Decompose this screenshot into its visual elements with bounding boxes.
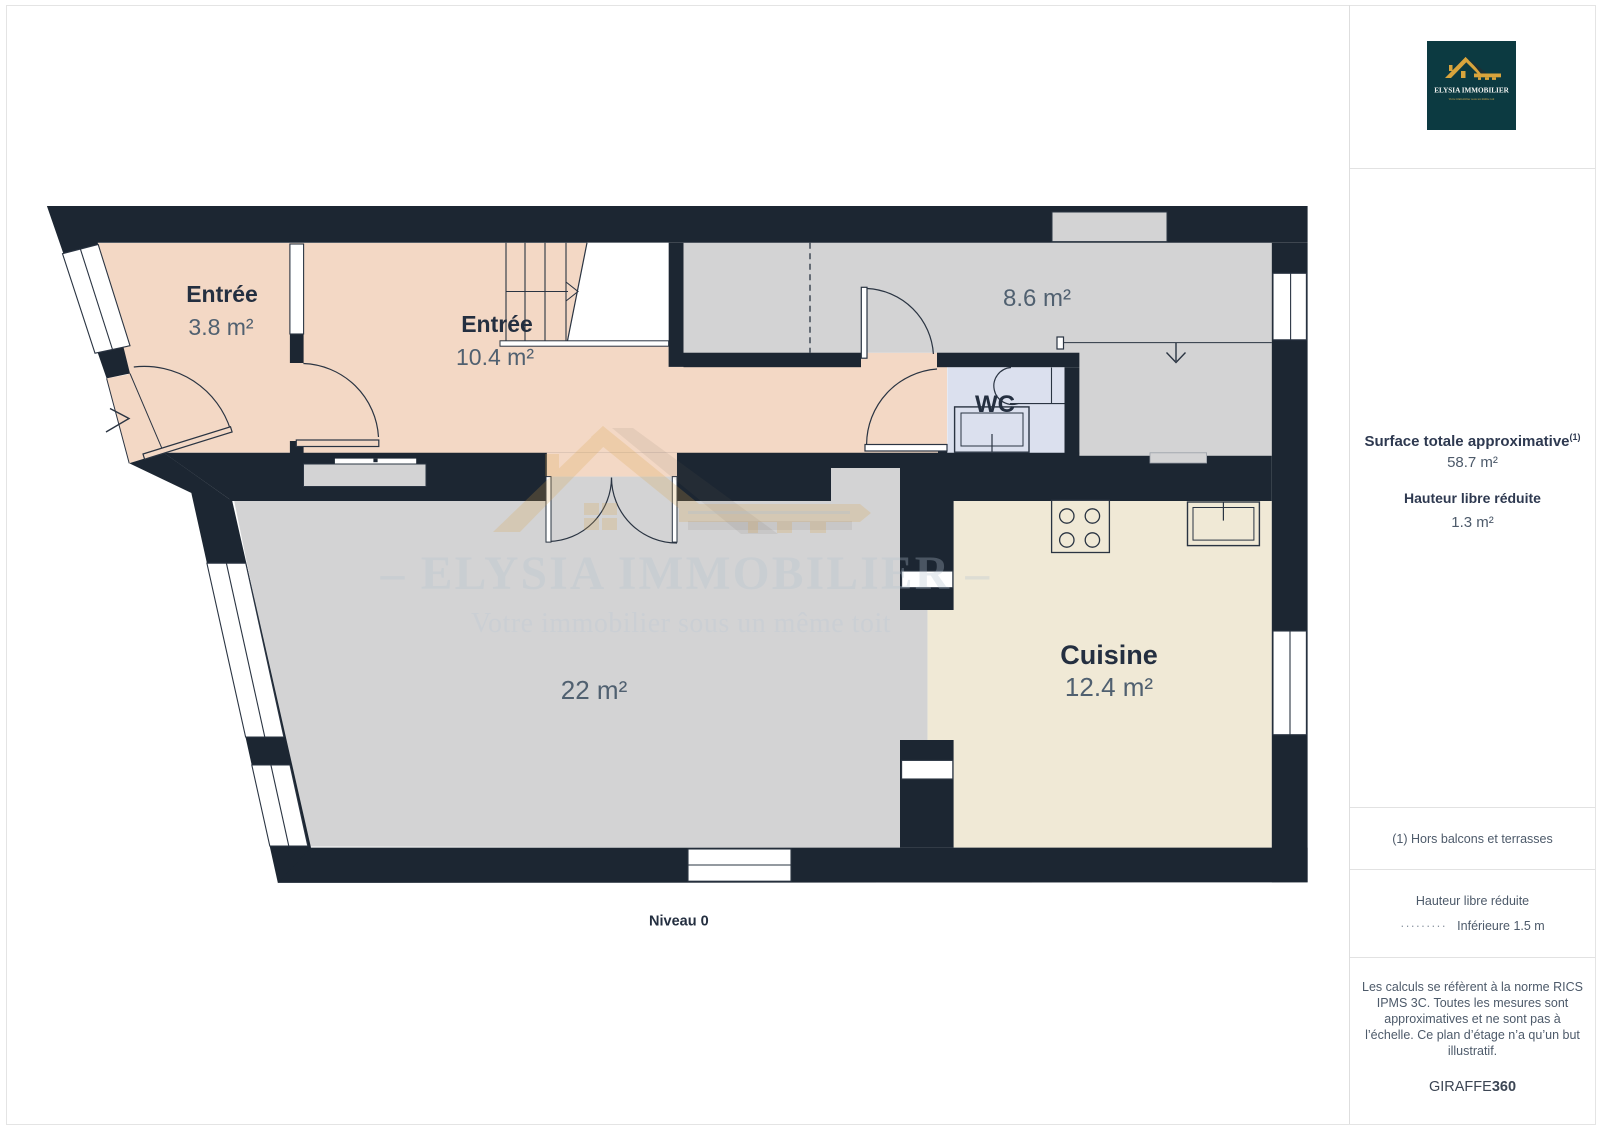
svg-text:Entrée: Entrée [461, 311, 533, 337]
svg-text:3.8 m²: 3.8 m² [188, 314, 254, 340]
svg-text:Cuisine: Cuisine [1060, 640, 1158, 670]
svg-text:Entrée: Entrée [186, 281, 258, 307]
svg-text:ELYSIA IMMOBILIER: ELYSIA IMMOBILIER [1434, 87, 1509, 95]
svg-text:Niveau 0: Niveau 0 [649, 914, 709, 930]
svg-text:Votre immobilier sous un même: Votre immobilier sous un même toit [1449, 97, 1495, 101]
svg-text:10.4 m²: 10.4 m² [456, 344, 534, 370]
svg-text:– ELYSIA IMMOBILIER –: – ELYSIA IMMOBILIER – [380, 548, 992, 600]
svg-text:8.6 m²: 8.6 m² [1003, 285, 1071, 312]
svg-text:22 m²: 22 m² [561, 675, 628, 705]
svg-text:Votre immobilier sous un même: Votre immobilier sous un même toit [471, 608, 891, 639]
svg-text:12.4 m²: 12.4 m² [1065, 672, 1153, 702]
svg-text:WC: WC [975, 391, 1015, 418]
